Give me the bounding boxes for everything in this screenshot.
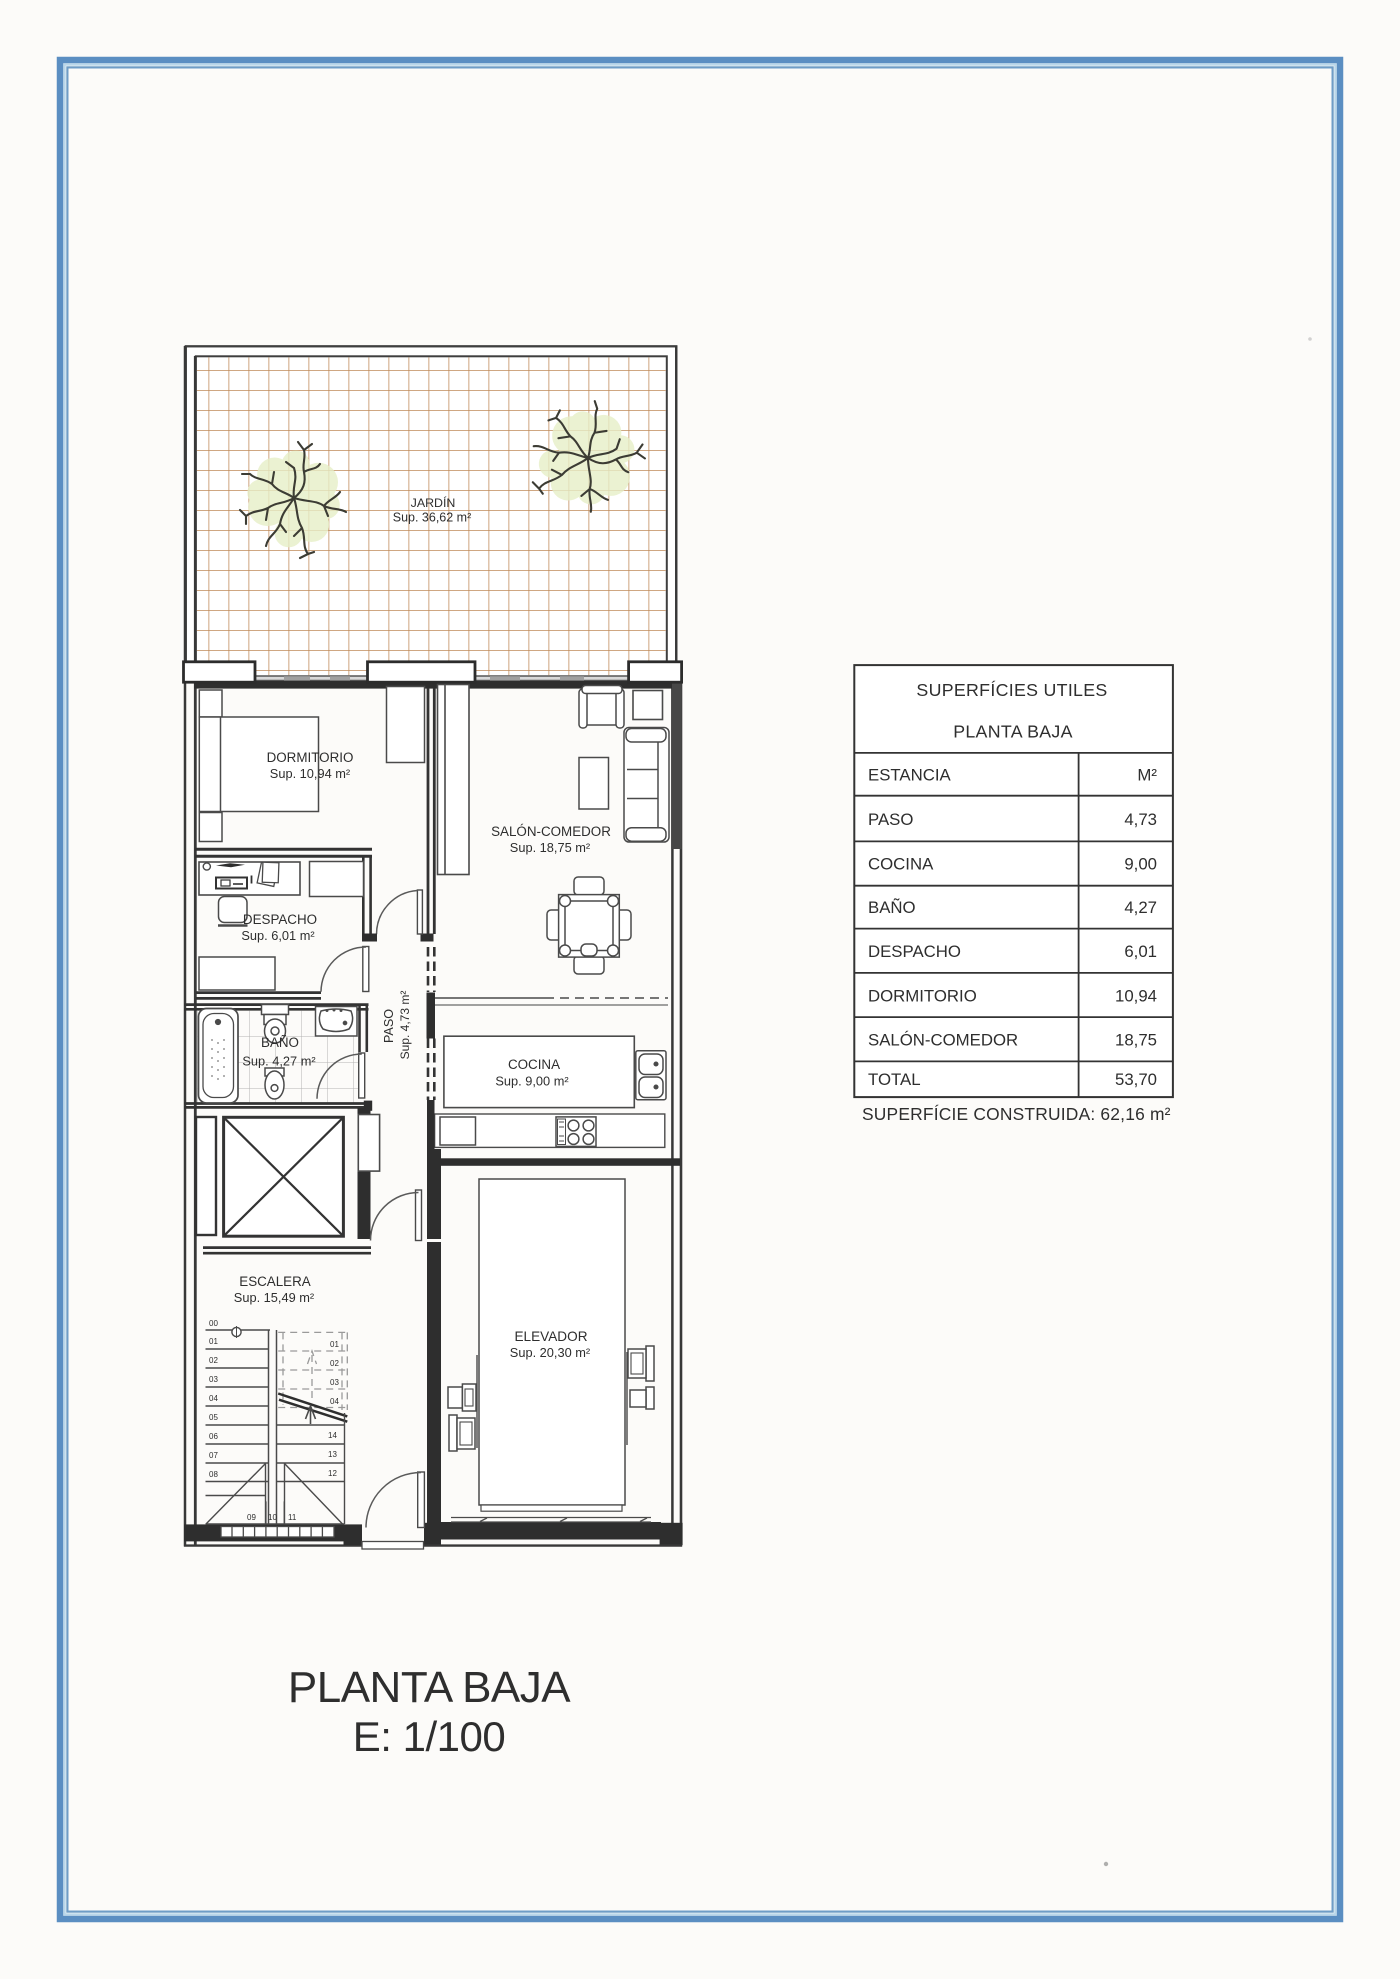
svg-text:DESPACHO: DESPACHO bbox=[243, 912, 317, 927]
svg-text:18,75: 18,75 bbox=[1115, 1031, 1157, 1050]
svg-text:13: 13 bbox=[328, 1450, 337, 1459]
svg-text:PASO: PASO bbox=[382, 1009, 396, 1043]
svg-text:COCINA: COCINA bbox=[508, 1057, 560, 1072]
svg-text:04: 04 bbox=[330, 1397, 339, 1406]
svg-text:Sup. 9,00 m²: Sup. 9,00 m² bbox=[495, 1074, 569, 1089]
svg-text:02: 02 bbox=[330, 1359, 339, 1368]
svg-text:SALÓN-COMEDOR: SALÓN-COMEDOR bbox=[868, 1031, 1018, 1050]
svg-text:ELEVADOR: ELEVADOR bbox=[514, 1329, 587, 1344]
svg-text:JARDÍN: JARDÍN bbox=[411, 495, 456, 510]
svg-text:10: 10 bbox=[268, 1513, 277, 1522]
svg-text:E: 1/100: E: 1/100 bbox=[353, 1713, 505, 1760]
svg-text:03: 03 bbox=[209, 1375, 218, 1384]
svg-text:06: 06 bbox=[209, 1432, 218, 1441]
svg-text:9,00: 9,00 bbox=[1124, 855, 1157, 874]
svg-text:01: 01 bbox=[209, 1337, 218, 1346]
svg-text:COCINA: COCINA bbox=[868, 855, 934, 874]
svg-text:00: 00 bbox=[209, 1319, 218, 1328]
svg-text:09: 09 bbox=[247, 1513, 256, 1522]
svg-text:SALÓN-COMEDOR: SALÓN-COMEDOR bbox=[491, 824, 611, 839]
svg-text:4,73: 4,73 bbox=[1124, 810, 1157, 829]
svg-text:07: 07 bbox=[209, 1451, 218, 1460]
svg-text:BAÑO: BAÑO bbox=[868, 897, 916, 917]
svg-text:ESTANCIA: ESTANCIA bbox=[868, 766, 951, 785]
svg-text:DESPACHO: DESPACHO bbox=[868, 942, 961, 961]
svg-text:4,27: 4,27 bbox=[1124, 898, 1157, 917]
svg-text:M²: M² bbox=[1137, 766, 1157, 785]
svg-text:Sup. 6,01 m²: Sup. 6,01 m² bbox=[241, 928, 315, 943]
svg-text:SUPERFÍCIES UTILES: SUPERFÍCIES UTILES bbox=[916, 680, 1107, 700]
svg-text:08: 08 bbox=[209, 1470, 218, 1479]
svg-text:11: 11 bbox=[288, 1513, 297, 1522]
svg-text:PLANTA BAJA: PLANTA BAJA bbox=[288, 1663, 571, 1712]
svg-text:53,70: 53,70 bbox=[1115, 1070, 1157, 1089]
svg-text:04: 04 bbox=[209, 1394, 218, 1403]
svg-text:Sup. 20,30 m²: Sup. 20,30 m² bbox=[510, 1345, 591, 1360]
svg-text:Sup. 18,75 m²: Sup. 18,75 m² bbox=[510, 840, 591, 855]
svg-text:05: 05 bbox=[209, 1413, 218, 1422]
svg-text:Sup. 4,73 m²: Sup. 4,73 m² bbox=[398, 991, 412, 1060]
svg-text:Sup. 4,27 m²: Sup. 4,27 m² bbox=[242, 1054, 316, 1069]
svg-text:Sup. 10,94 m²: Sup. 10,94 m² bbox=[270, 766, 351, 781]
svg-text:DORMITORIO: DORMITORIO bbox=[267, 750, 354, 765]
svg-text:02: 02 bbox=[209, 1356, 218, 1365]
svg-text:SUPERFÍCIE CONSTRUIDA: 62,16 m: SUPERFÍCIE CONSTRUIDA: 62,16 m² bbox=[862, 1104, 1171, 1124]
svg-text:14: 14 bbox=[328, 1431, 337, 1440]
svg-text:Sup. 36,62 m²: Sup. 36,62 m² bbox=[393, 511, 472, 525]
svg-text:6,01: 6,01 bbox=[1124, 942, 1157, 961]
svg-text:TOTAL: TOTAL bbox=[868, 1070, 921, 1089]
svg-text:PASO: PASO bbox=[868, 810, 913, 829]
svg-text:BAÑO: BAÑO bbox=[261, 1035, 299, 1050]
svg-text:Sup. 15,49 m²: Sup. 15,49 m² bbox=[234, 1290, 315, 1305]
svg-text:PLANTA BAJA: PLANTA BAJA bbox=[953, 722, 1073, 742]
svg-text:ESCALERA: ESCALERA bbox=[239, 1274, 311, 1289]
svg-text:10,94: 10,94 bbox=[1115, 987, 1157, 1006]
svg-text:01: 01 bbox=[330, 1340, 339, 1349]
svg-text:03: 03 bbox=[330, 1378, 339, 1387]
svg-text:DORMITORIO: DORMITORIO bbox=[868, 987, 977, 1006]
svg-text:12: 12 bbox=[328, 1469, 337, 1478]
